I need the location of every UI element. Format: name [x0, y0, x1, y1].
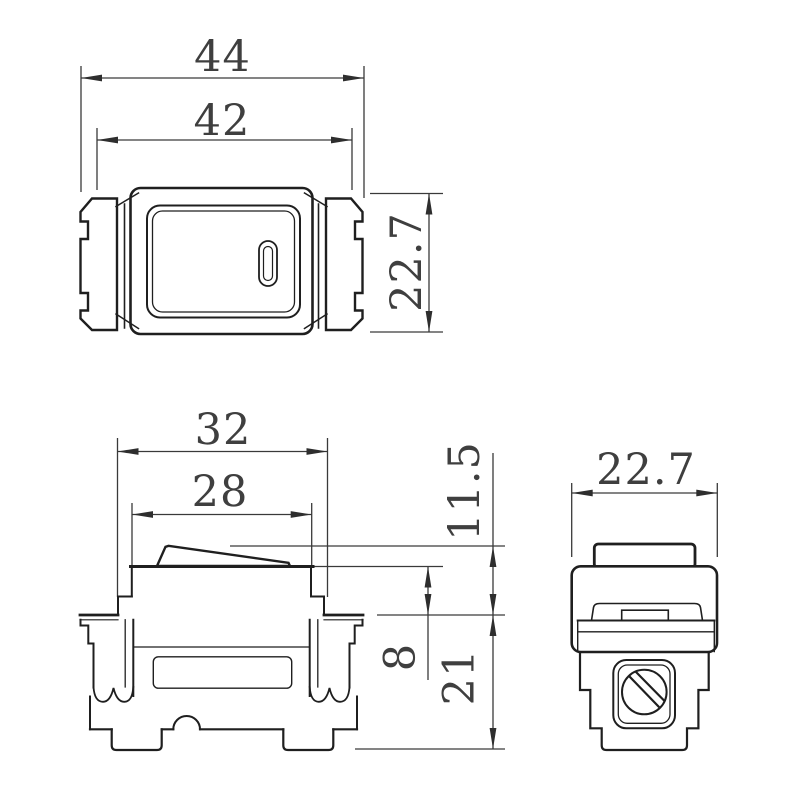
side-plate-sides: [132, 567, 311, 597]
side-rocker: [157, 546, 290, 566]
side-foot-left: [112, 729, 162, 750]
dim-label-21: 21: [435, 649, 485, 706]
side-body-sides: [133, 620, 309, 696]
end-rocker-cap: [594, 544, 695, 568]
side-wing-left-claws: [94, 687, 134, 702]
side-wing-right: [350, 620, 363, 688]
front-indicator-lens-outer: [259, 241, 277, 286]
dim-label-44: 44: [194, 32, 251, 82]
side-rail-lines: [125, 620, 318, 687]
dim-label-22-7-front: 22.7: [382, 212, 432, 312]
dim-label-32: 32: [195, 405, 252, 455]
side-label-recess: [153, 657, 291, 688]
side-foot-right: [283, 729, 333, 750]
side-bottom-notch: [173, 716, 200, 729]
dim-label-8: 8: [376, 643, 426, 671]
dim-label-11-5: 11.5: [440, 441, 490, 541]
side-extension-lines: [118, 438, 328, 597]
dim-label-22-7-end: 22.7: [596, 445, 696, 495]
side-wing-right-claws: [310, 687, 350, 702]
technical-drawing-rocker-switch: 44 42 22.7 32 28 11: [0, 0, 800, 800]
drawing-svg: 44 42 22.7 32 28 11: [0, 0, 800, 800]
end-view: 22.7: [572, 445, 718, 750]
front-view: 44 42 22.7: [81, 32, 444, 334]
side-ledges: [118, 597, 324, 616]
side-view: 32 28 11.5 8 21: [80, 405, 505, 750]
front-right-wing: [326, 199, 363, 331]
dim-label-28: 28: [192, 467, 249, 517]
dim-label-42: 42: [194, 96, 251, 146]
front-left-wing: [81, 199, 118, 331]
side-wing-left: [81, 620, 94, 688]
